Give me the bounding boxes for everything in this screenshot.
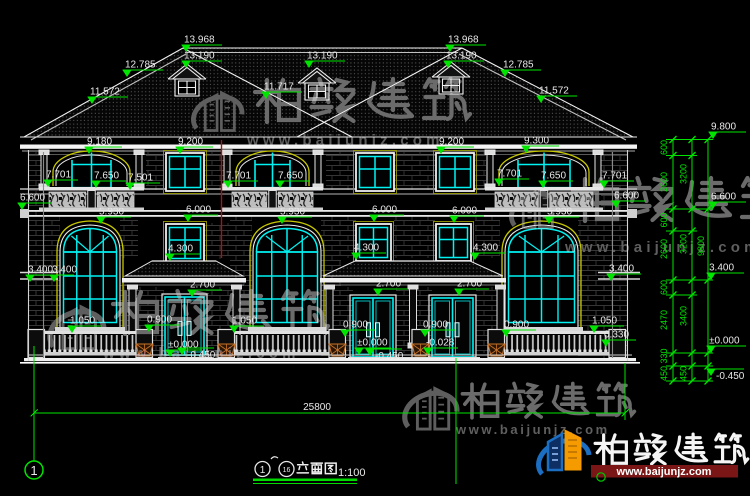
svg-text:450: 450 [679, 366, 689, 381]
svg-text:0.900: 0.900 [343, 320, 368, 331]
svg-text:4.300: 4.300 [354, 243, 379, 254]
svg-text:7.650: 7.650 [278, 171, 303, 182]
svg-text:11.717: 11.717 [264, 82, 294, 93]
svg-text:www.baijunjz.com: www.baijunjz.com [455, 422, 610, 437]
svg-text:12.785: 12.785 [125, 60, 156, 71]
svg-text:7.701: 7.701 [46, 170, 71, 181]
svg-text:2.700: 2.700 [190, 280, 215, 291]
svg-text:5.930: 5.930 [280, 207, 305, 218]
svg-text:6.600: 6.600 [711, 192, 736, 203]
svg-text:www.baijunjz.com: www.baijunjz.com [564, 239, 750, 256]
svg-text:3.400: 3.400 [52, 265, 77, 276]
svg-text:9.300: 9.300 [524, 136, 549, 147]
svg-text:0.900: 0.900 [147, 315, 172, 326]
svg-text:±0.000: ±0.000 [357, 338, 388, 349]
svg-text:www.baijunjz.com: www.baijunjz.com [246, 132, 444, 149]
svg-text:1.050: 1.050 [592, 316, 617, 327]
svg-text:2470: 2470 [659, 310, 669, 330]
svg-text:-0.028: -0.028 [426, 338, 455, 349]
svg-text:13.190: 13.190 [446, 51, 477, 62]
svg-text:3400: 3400 [679, 306, 689, 326]
svg-text:12.785: 12.785 [503, 60, 534, 71]
svg-text:6.000: 6.000 [186, 205, 211, 216]
svg-text:3.400: 3.400 [709, 263, 734, 274]
svg-text:16: 16 [283, 467, 291, 474]
svg-text:-0.450: -0.450 [375, 351, 404, 362]
svg-text:11.572: 11.572 [539, 86, 569, 97]
svg-text:3200: 3200 [679, 234, 689, 254]
svg-text:6.600: 6.600 [20, 193, 45, 204]
svg-text:1.050: 1.050 [70, 316, 95, 327]
svg-text:11.572: 11.572 [90, 87, 120, 98]
svg-text:0.900: 0.900 [504, 320, 529, 331]
svg-text:5.930: 5.930 [547, 207, 572, 218]
svg-text:25800: 25800 [303, 402, 331, 413]
svg-text:6.600: 6.600 [614, 191, 639, 202]
svg-text:3.400: 3.400 [28, 265, 53, 276]
svg-text:1: 1 [30, 463, 37, 478]
svg-text:4.300: 4.300 [473, 243, 498, 254]
svg-text:6.000: 6.000 [372, 205, 397, 216]
svg-text:600: 600 [659, 140, 669, 155]
svg-text:9.200: 9.200 [439, 137, 464, 148]
svg-text:7.650: 7.650 [541, 171, 566, 182]
svg-text:9.200: 9.200 [178, 137, 203, 148]
svg-text:1: 1 [260, 465, 266, 476]
svg-text:-0.450: -0.450 [187, 350, 216, 361]
svg-text:13.190: 13.190 [307, 51, 338, 62]
svg-text:7.701: 7.701 [497, 169, 522, 180]
svg-text:9800: 9800 [696, 236, 706, 256]
svg-text:6.000: 6.000 [452, 206, 477, 217]
svg-text:13.968: 13.968 [448, 35, 479, 46]
svg-text:1.050: 1.050 [232, 316, 257, 327]
svg-text:0.330: 0.330 [604, 330, 629, 341]
svg-text:4.300: 4.300 [168, 244, 193, 255]
svg-text:1:100: 1:100 [338, 467, 366, 479]
svg-text:450: 450 [659, 366, 669, 381]
svg-text:9.800: 9.800 [711, 122, 736, 133]
svg-text:330: 330 [659, 348, 669, 363]
svg-text:7.701: 7.701 [602, 171, 627, 182]
svg-text:±0.000: ±0.000 [709, 336, 740, 347]
svg-text:0.900: 0.900 [423, 320, 448, 331]
svg-text:600: 600 [659, 212, 669, 227]
svg-text:2600: 2600 [659, 239, 669, 259]
svg-text:3.400: 3.400 [609, 264, 634, 275]
svg-text:7.501: 7.501 [128, 173, 153, 184]
svg-text:2.700: 2.700 [376, 279, 401, 290]
svg-text:13.190: 13.190 [184, 51, 215, 62]
svg-text:2.700: 2.700 [457, 279, 482, 290]
svg-text:www.baijunjz.com: www.baijunjz.com [616, 466, 712, 478]
svg-text:9.180: 9.180 [87, 137, 112, 148]
svg-text:3200: 3200 [679, 164, 689, 184]
svg-text:13.968: 13.968 [184, 35, 215, 46]
svg-text:5.930: 5.930 [99, 207, 124, 218]
svg-text:2600: 2600 [659, 172, 669, 192]
svg-text:7.650: 7.650 [94, 171, 119, 182]
svg-text:7.701: 7.701 [226, 171, 251, 182]
svg-text:600: 600 [659, 280, 669, 295]
svg-text:-0.450: -0.450 [716, 371, 745, 382]
